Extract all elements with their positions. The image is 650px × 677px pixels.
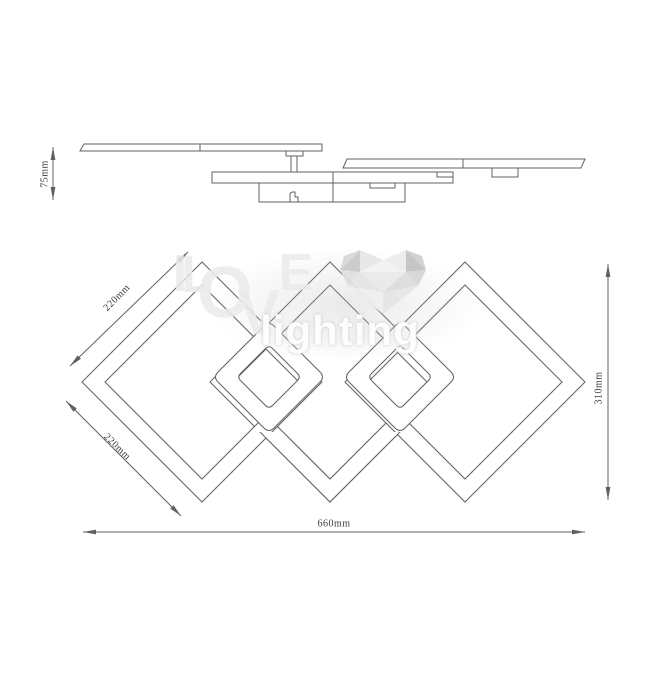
small-right-frame — [347, 324, 454, 431]
dim-label-right-diagonal: 310mm — [594, 371, 605, 404]
dim-label-overall-width: 660mm — [317, 519, 350, 530]
side-view — [80, 144, 585, 202]
right-square-frame — [345, 262, 585, 502]
dim-label-side-height: 75mm — [40, 160, 51, 188]
small-left-frame — [216, 324, 323, 431]
plan-view — [82, 262, 585, 502]
drawing-svg — [0, 0, 650, 677]
technical-drawing: 75mm 220mm 220mm 310mm 660mm I L O V E l… — [0, 0, 650, 677]
